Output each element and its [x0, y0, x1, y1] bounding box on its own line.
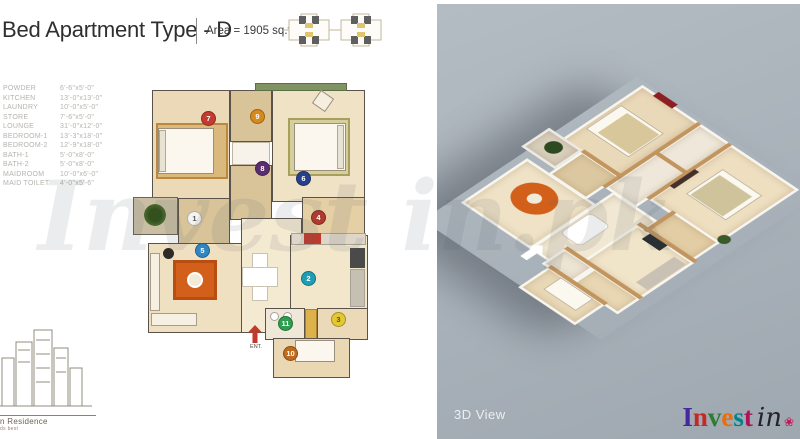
lounge-table — [187, 272, 203, 288]
legend-row: BEDROOM-113'-3"x18'-0" — [3, 132, 131, 142]
bedroom2-bed — [158, 128, 214, 174]
balcony-plant — [144, 204, 166, 226]
area-badge: Area = 1905 sq.ft. — [196, 18, 297, 44]
room-marker-powder: 1 — [187, 211, 202, 226]
legend-row: LOUNGE31'-0"x12'-0" — [3, 122, 131, 132]
flower-icon: ❀ — [784, 415, 794, 429]
room-powder — [178, 198, 230, 245]
brand-letter: s — [733, 402, 744, 432]
view-label: 3D View — [454, 407, 506, 422]
brand-word: Invest — [682, 402, 753, 433]
brand-letter: I — [682, 402, 693, 432]
room-marker-bath1: 8 — [255, 161, 270, 176]
legend-row: LAUNDRY10'-0"x5'-0" — [3, 103, 131, 113]
building-sketch-icon — [0, 328, 92, 408]
floorplan-sheet: Bed Apartment Type - D Area = 1905 sq.ft… — [0, 0, 800, 439]
maid-bed — [295, 340, 335, 362]
lounge-sofa-bottom — [151, 313, 197, 326]
kitchen-counter-right — [350, 269, 365, 307]
room-marker-bedroom1: 6 — [296, 171, 311, 186]
legend-row: KITCHEN13'-0"x13'-0" — [3, 94, 131, 104]
kitchen-stove — [304, 233, 321, 244]
lounge-speaker — [163, 248, 174, 259]
bedroom1-pillows — [337, 125, 344, 169]
logo-divider — [0, 415, 96, 416]
legend-row: BEDROOM-212'-9"x18'-0" — [3, 141, 131, 151]
brand-letter: v — [708, 402, 722, 432]
legend-row: MAIDROOM10'-0"x6'-0" — [3, 170, 131, 180]
kitchen-counter — [291, 233, 366, 245]
legend-row: MAID TOILET4'-0"x5'-6" — [3, 179, 131, 189]
panel-3d-view: 3D View Invest in ❀ — [437, 4, 800, 439]
brand-suffix: in — [757, 403, 782, 433]
room-marker-bath2: 9 — [250, 109, 265, 124]
bedroom2-pillows — [159, 130, 166, 172]
lounge-sofa-left — [150, 253, 160, 311]
developer-logo: n Residence ds best — [0, 328, 100, 432]
room-marker-kitchen: 2 — [301, 271, 316, 286]
floor-plan-2d: ENT. 1 2 3 4 5 6 7 8 9 10 11 — [140, 85, 382, 377]
floor-plan-3d — [437, 77, 800, 340]
legend-row: POWDER6'-6"x5'-0" — [3, 84, 131, 94]
room-marker-store: 4 — [311, 210, 326, 225]
balcony-planter-top — [255, 83, 347, 91]
wardrobe-strip — [305, 309, 317, 339]
entrance-label: ENT. — [243, 344, 269, 350]
room-marker-maidtoilet: 11 — [278, 316, 293, 331]
dining-table-h — [242, 267, 278, 287]
developer-name: n Residence — [0, 417, 100, 426]
kitchen-fridge — [350, 248, 365, 268]
legend-row: BATH-15'-0"x8'-0" — [3, 151, 131, 161]
room-marker-maidroom: 10 — [283, 346, 298, 361]
room-marker-laundry: 3 — [331, 312, 346, 327]
brand-letter: e — [721, 402, 733, 432]
room-marker-lounge: 5 — [195, 243, 210, 258]
brand-letter: n — [693, 402, 708, 432]
room-legend: POWDER6'-6"x5'-0" KITCHEN13'-0"x13'-0" L… — [3, 84, 131, 189]
room-marker-bedroom2: 7 — [201, 111, 216, 126]
legend-row: BATH-25'-0"x8'-0" — [3, 160, 131, 170]
developer-tagline: ds best — [0, 426, 100, 432]
brand-letter: t — [744, 402, 753, 432]
brand-logo: Invest in ❀ — [682, 402, 794, 433]
legend-row: STORE7'-6"x5'-0" — [3, 113, 131, 123]
key-plan-icon — [283, 6, 387, 54]
